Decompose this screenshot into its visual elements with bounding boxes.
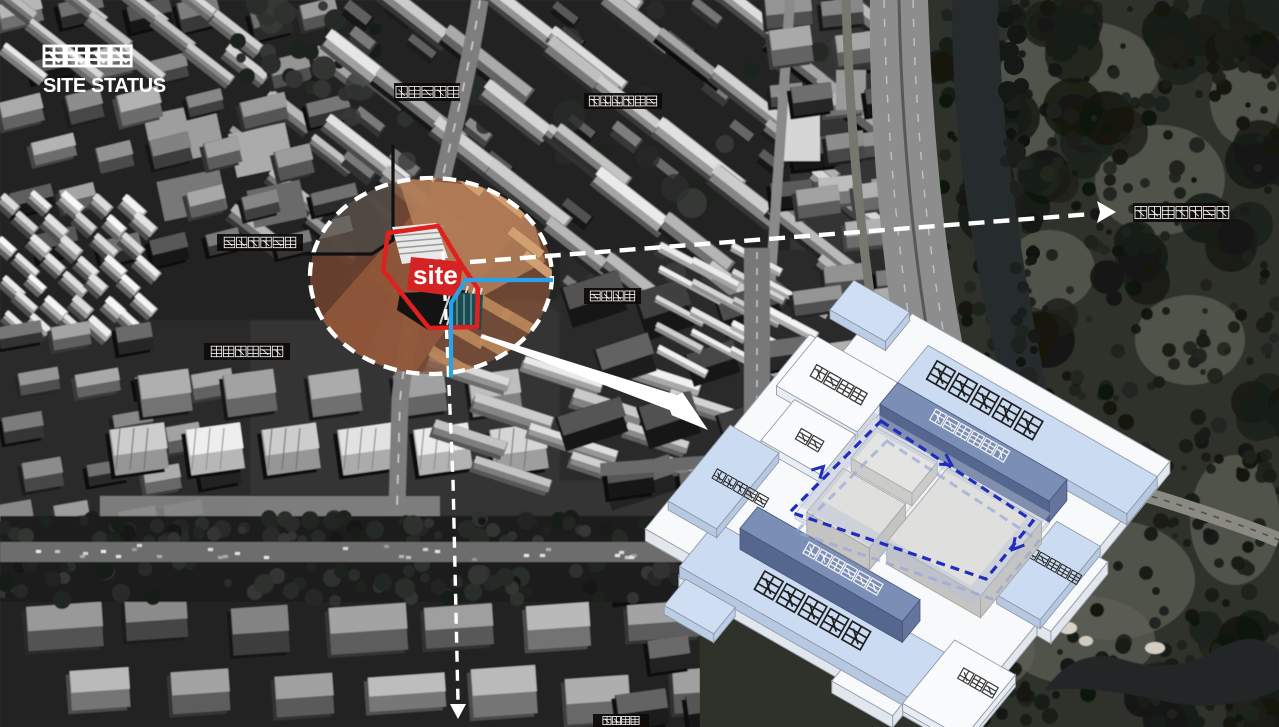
svg-text:site: site [413, 260, 458, 290]
svg-text:SITE STATUS: SITE STATUS [43, 75, 166, 97]
